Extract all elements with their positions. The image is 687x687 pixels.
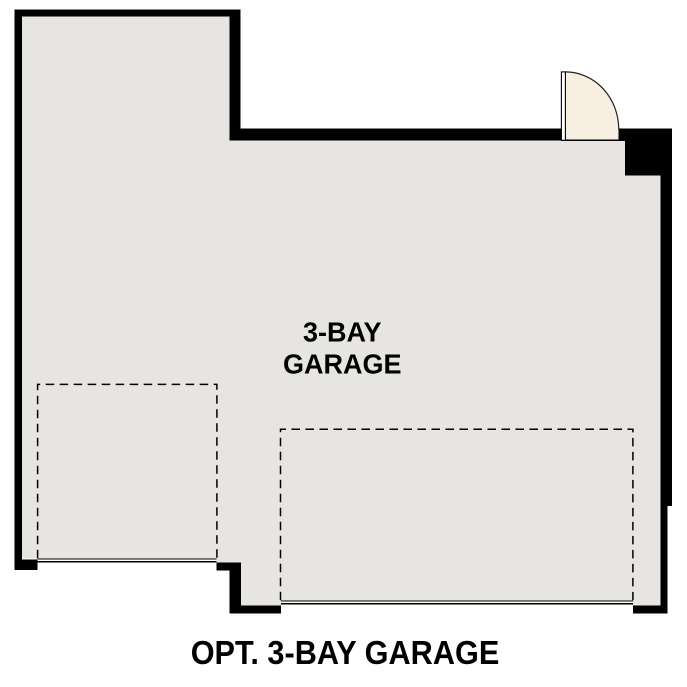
svg-text:OPT. 3-BAY GARAGE: OPT. 3-BAY GARAGE [191, 634, 500, 671]
svg-text:3-BAY: 3-BAY [303, 316, 382, 348]
svg-text:GARAGE: GARAGE [283, 348, 402, 380]
